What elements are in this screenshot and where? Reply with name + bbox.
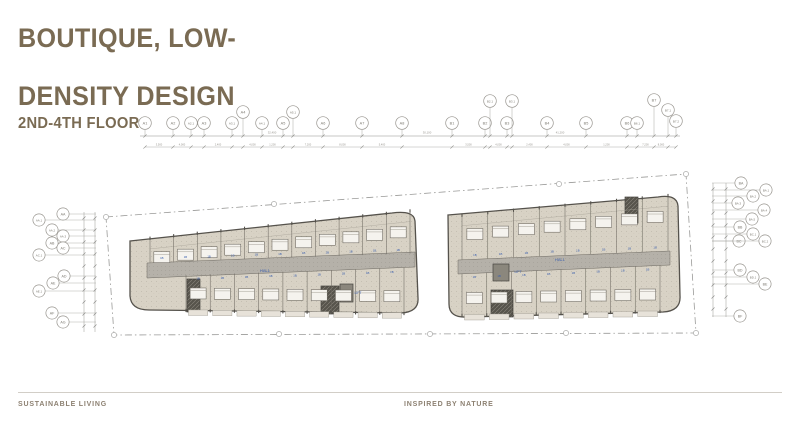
- grid-bubble-label: B4: [545, 122, 550, 126]
- grid-bubble-label: AB: [50, 241, 55, 245]
- dimension-value: 2,400: [215, 143, 222, 147]
- bed-icon: [565, 291, 581, 302]
- bed-icon: [541, 291, 557, 302]
- boundary-marker: [111, 332, 116, 337]
- balcony: [588, 312, 608, 318]
- balcony: [465, 314, 485, 320]
- unit-label: 1B: [342, 272, 346, 276]
- grid-bubble-label: AA.1: [36, 218, 43, 222]
- grid-bubble-label: B1: [450, 122, 455, 126]
- grid-bubble-label: BD: [738, 268, 743, 272]
- bed-icon: [647, 211, 663, 222]
- grid-bubble-label: AE: [51, 281, 56, 285]
- unit-label: 1B: [572, 271, 576, 275]
- boundary-marker: [271, 201, 276, 206]
- unit-label: 1B: [293, 273, 297, 277]
- grid-bubble-label: BF: [738, 314, 743, 318]
- building-b-lift-shaft: [493, 264, 509, 281]
- grid-bubble-label: A5.1: [290, 111, 297, 115]
- dimension-value: 4,000: [249, 143, 256, 147]
- dimension-value: 2,400: [526, 143, 533, 147]
- bed-icon: [263, 289, 279, 300]
- dimension-value: 3,500: [465, 143, 472, 147]
- grid-bubble-label: BA.3: [735, 201, 742, 205]
- balcony: [489, 314, 509, 320]
- balcony: [613, 312, 633, 318]
- grid-bubble-label: AD: [62, 274, 67, 278]
- unit-label: 1B: [231, 254, 235, 258]
- grid-bubble-label: BA.1: [763, 188, 770, 192]
- unit-label: 1B: [602, 248, 606, 252]
- grid-bubble-label: AA.3: [60, 234, 67, 238]
- hall-label-b: HALL: [555, 257, 566, 262]
- grid-bubble-label: A1: [143, 122, 148, 126]
- dimension-value: 8,000: [658, 143, 665, 147]
- bed-icon: [384, 291, 400, 302]
- balcony: [358, 312, 377, 318]
- bed-icon: [296, 237, 312, 248]
- grid-bubble-label: B7.1: [665, 109, 672, 113]
- presentation-slide: BOUTIQUE, LOW- DENSITY DESIGN 2ND-4TH FL…: [0, 0, 800, 434]
- bed-icon: [518, 224, 534, 235]
- bed-icon: [311, 290, 327, 301]
- grid-bubble-label: A2: [171, 122, 176, 126]
- unit-label: 1B: [184, 255, 188, 259]
- dimension-total: 41,200: [556, 130, 565, 134]
- unit-label: 1B: [349, 249, 353, 253]
- grid-bubble-label: BE: [763, 282, 768, 286]
- grid-bubble-label: A7: [360, 122, 365, 126]
- grid-bubble-label: B7.2: [673, 120, 680, 124]
- unit-label: 1B: [196, 277, 200, 281]
- grid-bubble-label: BC.1: [750, 232, 757, 236]
- dimension-total: 32,400: [268, 130, 277, 134]
- unit-label: 1B: [207, 254, 211, 258]
- balcony: [638, 311, 658, 317]
- grid-bubble-label: A3.1: [229, 122, 236, 126]
- unit-label: 1B: [396, 248, 400, 252]
- hall-label-a: HALL: [260, 268, 271, 273]
- bed-icon: [319, 234, 335, 245]
- unit-label: 1B: [547, 272, 551, 276]
- grid-bubble-label: A4: [241, 111, 246, 115]
- dimension-value: 4,000: [563, 143, 570, 147]
- unit-label: 1B: [221, 276, 225, 280]
- unit-label: 1B: [160, 256, 164, 260]
- unit-label: 1B: [646, 268, 650, 272]
- bed-icon: [570, 219, 586, 230]
- unit-label: 1B: [255, 253, 259, 257]
- dimension-value: 8,000: [339, 143, 346, 147]
- bed-icon: [367, 229, 383, 240]
- unit-label: 1B: [525, 251, 529, 255]
- dimension-value: 4,000: [495, 143, 502, 147]
- grid-bubble-label: BA.4: [761, 208, 768, 212]
- grid-bubble-label: AA: [61, 212, 66, 216]
- grid-bubble-label: A5: [281, 122, 286, 126]
- bed-icon: [493, 226, 509, 237]
- bed-icon: [491, 292, 507, 303]
- unit-label: 1B: [245, 275, 249, 279]
- grid-bubble-label: B3: [505, 122, 510, 126]
- grid-bubble-label: BD.1: [750, 275, 757, 279]
- bed-icon: [466, 292, 482, 303]
- balcony: [189, 310, 208, 316]
- dimension-value: 7,200: [305, 143, 312, 147]
- unit-label: 1B: [373, 249, 377, 253]
- bed-icon: [621, 214, 637, 225]
- grid-bubble-label: A8: [400, 122, 405, 126]
- boundary-marker: [556, 181, 561, 186]
- grid-bubble-label: BA: [739, 181, 744, 185]
- grid-bubble-label: B2: [483, 122, 488, 126]
- balcony: [237, 311, 256, 317]
- bed-icon: [615, 290, 631, 301]
- bed-icon: [544, 221, 560, 232]
- balcony: [564, 313, 584, 319]
- dimension-value: 4,000: [179, 143, 186, 147]
- dimension-value: 1,200: [269, 143, 276, 147]
- grid-bubble-label: BA.5: [749, 217, 756, 221]
- bed-icon: [516, 292, 532, 303]
- unit-label: 1B: [366, 271, 370, 275]
- grid-bubble-label: AC: [61, 246, 66, 250]
- bed-icon: [360, 290, 376, 301]
- lift-label-b: LIFT: [515, 270, 522, 274]
- grid-bubble-label: B7: [652, 99, 657, 103]
- balcony: [310, 312, 329, 318]
- grid-bubble-label: A2.1: [188, 122, 195, 126]
- grid-bubble-label: B6.1: [634, 122, 641, 126]
- boundary-marker: [427, 331, 432, 336]
- grid-bubble-label: B3.1: [509, 100, 516, 104]
- grid-bubble-label: BC: [737, 239, 742, 243]
- boundary-marker: [683, 171, 688, 176]
- lift-label-a: LIFT: [355, 291, 362, 295]
- unit-label: 1B: [550, 250, 554, 254]
- grid-bubble-label: BA.2: [750, 194, 757, 198]
- unit-label: 1B: [278, 252, 282, 256]
- unit-label: 1B: [318, 273, 322, 277]
- footer-tagline-center: INSPIRED BY NATURE: [404, 401, 494, 408]
- bed-icon: [335, 290, 351, 301]
- unit-label: 1B: [497, 274, 501, 278]
- balcony: [514, 314, 534, 320]
- dimension-total: 30,100: [423, 130, 432, 134]
- bed-icon: [239, 289, 255, 300]
- balcony: [382, 313, 401, 319]
- bed-icon: [467, 229, 483, 240]
- bed-icon: [214, 288, 230, 299]
- bed-icon: [190, 288, 206, 299]
- boundary-marker: [563, 330, 568, 335]
- grid-bubble-label: AC.1: [36, 253, 43, 257]
- boundary-marker: [693, 330, 698, 335]
- grid-bubble-label: AA.2: [49, 228, 56, 232]
- unit-label: 1B: [653, 245, 657, 249]
- balcony: [539, 313, 559, 319]
- dimension-value: 3,500: [156, 143, 163, 147]
- grid-bubble-label: B6: [625, 122, 630, 126]
- unit-label: 1B: [473, 253, 477, 257]
- bed-icon: [248, 242, 264, 253]
- balcony: [261, 311, 280, 317]
- unit-label: 1B: [576, 249, 580, 253]
- balcony: [213, 310, 232, 316]
- grid-bubble-label: A6: [321, 122, 326, 126]
- balcony: [334, 312, 353, 318]
- unit-label: 1B: [326, 250, 330, 254]
- bed-icon: [590, 290, 606, 301]
- unit-label: 1B: [302, 251, 306, 255]
- unit-label: 1B: [473, 275, 477, 279]
- boundary-marker: [103, 214, 108, 219]
- unit-label: 1B: [621, 269, 625, 273]
- grid-bubble-label: BC.2: [762, 239, 769, 243]
- footer-tagline-left: SUSTAINABLE LIVING: [18, 401, 107, 408]
- unit-label: 1B: [596, 270, 600, 274]
- bed-icon: [390, 227, 406, 238]
- unit-label: 1B: [499, 252, 503, 256]
- grid-bubble-label: AF: [50, 311, 55, 315]
- grid-bubble-label: AG: [60, 320, 65, 324]
- grid-bubble-label: A4.1: [259, 122, 266, 126]
- unit-label: 1B: [522, 273, 526, 277]
- grid-bubble-label: A3: [202, 122, 207, 126]
- unit-label: 1B: [628, 246, 632, 250]
- bed-icon: [596, 216, 612, 227]
- grid-bubble-label: B5: [584, 122, 589, 126]
- bed-icon: [343, 232, 359, 243]
- grid-bubble-label: AE.1: [36, 289, 43, 293]
- bed-icon: [272, 239, 288, 250]
- footer-divider: [18, 392, 782, 393]
- floor-plan-drawing: 1B1B1B1B1B1B1B1B1B1B1B1B1B1B1B1B1B1B1B1B…: [0, 0, 800, 434]
- dimension-value: 7,200: [642, 143, 649, 147]
- unit-label: 1B: [390, 270, 394, 274]
- grid-bubble-label: BB: [738, 225, 743, 229]
- grid-bubble-label: B2.1: [487, 100, 494, 104]
- dimension-value: 5,400: [379, 143, 386, 147]
- boundary-marker: [276, 331, 281, 336]
- unit-label: 1B: [269, 274, 273, 278]
- dimension-value: 1,200: [603, 143, 610, 147]
- bed-icon: [640, 289, 656, 300]
- bed-icon: [287, 289, 303, 300]
- balcony: [285, 311, 304, 317]
